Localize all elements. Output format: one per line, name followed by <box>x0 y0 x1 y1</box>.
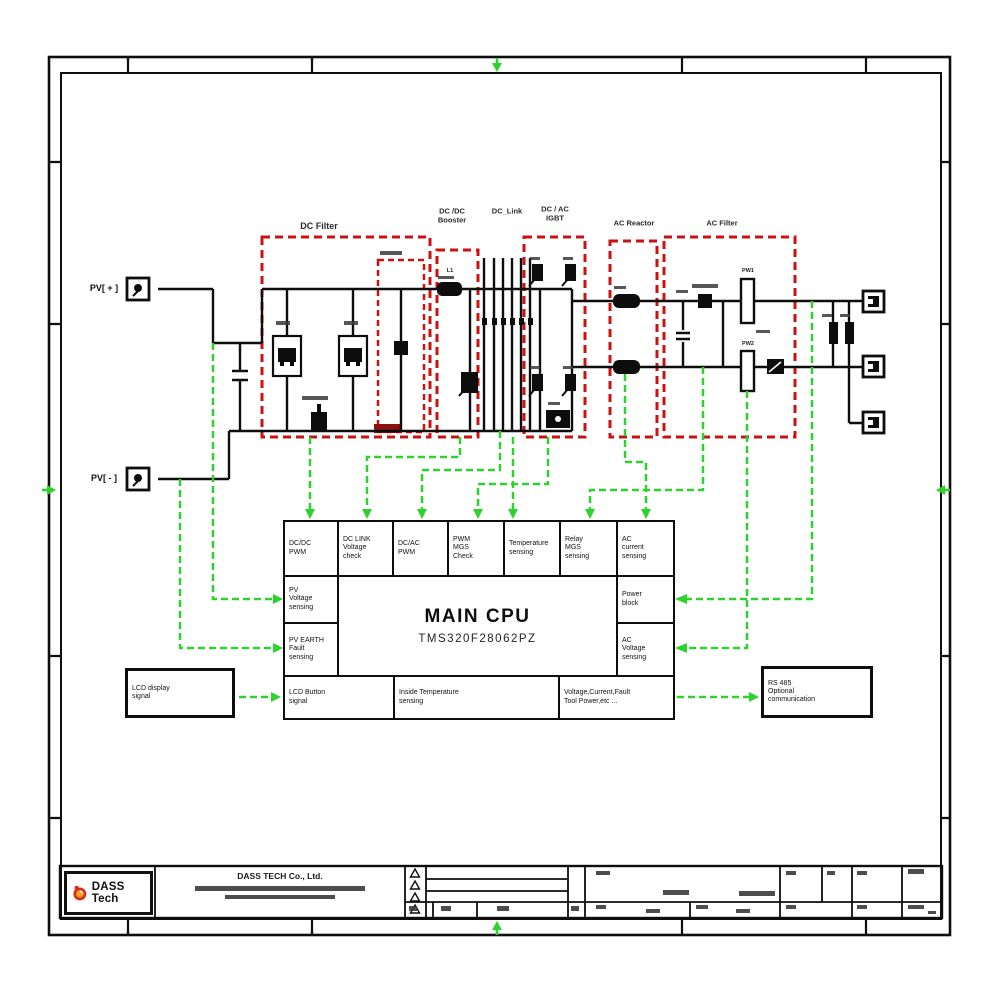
rs485-communication-box: RS 485 Optional communication <box>761 666 873 718</box>
cpu-box-ac-current-sensing: AC current sensing <box>616 520 675 577</box>
lcd-display-signal-box: LCD display signal <box>125 668 235 718</box>
section-label-ac-reactor: AC Reactor <box>614 220 655 229</box>
cpu-box-dcdc-pwm: DC/DC PWM <box>283 520 339 577</box>
cpu-box-voltage-current-fault: Voltage,Current,Fault Tool Power,etc ... <box>558 675 675 720</box>
cpu-box-ac-voltage-sensing: AC Voltage sensing <box>616 622 675 677</box>
relay-pw1 <box>741 279 754 323</box>
ac-reactor-box <box>610 241 657 437</box>
cpu-box-lcd-button-signal: LCD Button signal <box>283 675 395 720</box>
nf-component <box>698 294 712 308</box>
label-pw2: PW2 <box>742 341 754 347</box>
dass-tech-logo-text: DASS Tech <box>92 881 150 905</box>
frame-center-marks <box>42 58 950 935</box>
varistor-1 <box>829 322 838 344</box>
inductor-l1 <box>437 282 462 296</box>
ac-filter-box <box>664 237 795 437</box>
schematic-sheet: DC Filter DC /DC Booster DC_Link DC / AC… <box>0 0 1000 1000</box>
ac-output-terminals <box>863 291 884 433</box>
relay-pw2 <box>741 351 754 391</box>
reactor-coil-top <box>613 294 640 308</box>
section-label-ac-filter: AC Filter <box>706 220 737 229</box>
section-label-dcdc-booster: DC /DC Booster <box>438 207 466 224</box>
label-l1: L1 <box>447 268 453 274</box>
pv-terminals <box>127 278 149 490</box>
main-cpu-title: MAIN CPU <box>425 606 531 628</box>
main-cpu-box: MAIN CPU TMS320F28062PZ <box>337 575 618 677</box>
dass-tech-logo-cell: DASS Tech <box>64 871 153 915</box>
sensor-component <box>394 341 408 355</box>
main-cpu-chip: TMS320F28062PZ <box>418 633 536 647</box>
cpu-box-power-block: Power block <box>616 575 675 624</box>
sheet-frame <box>49 57 950 935</box>
company-name: DASS TECH Co., Ltd. <box>237 872 322 882</box>
circuit-components <box>127 264 884 490</box>
section-label-dc-filter: DC Filter <box>300 221 338 231</box>
cpu-box-pv-earth-fault-sensing: PV EARTH Fault sensing <box>283 622 339 677</box>
igbt-devices <box>532 264 576 391</box>
reactor-coil-bottom <box>613 360 640 374</box>
dass-tech-flame-icon <box>72 884 88 902</box>
cpu-box-pwm-mgs-check: PWM MGS Check <box>447 520 505 577</box>
filter-earth-component <box>311 412 327 431</box>
label-pw1: PW1 <box>742 268 754 274</box>
power-rails <box>158 258 864 479</box>
pv-minus-label: PV[ - ] <box>91 473 117 483</box>
cpu-box-temperature-sensing: Temperature sensing <box>503 520 561 577</box>
cpu-box-dcac-pwm: DC/AC PWM <box>392 520 449 577</box>
section-label-dc-link: DC_Link <box>492 208 522 217</box>
cpu-box-inside-temperature-sensing: Inside Temperature sensing <box>393 675 560 720</box>
schematic-canvas <box>0 0 1000 1000</box>
section-label-dcac-igbt: DC / AC IGBT <box>541 205 569 222</box>
cpu-box-relay-mgs-sensing: Relay MGS sensing <box>559 520 618 577</box>
pv-plus-label: PV[ + ] <box>90 283 118 293</box>
cpu-box-dclink-voltage-check: DC LINK Voltage check <box>337 520 394 577</box>
cpu-box-pv-voltage-sensing: PV Voltage sensing <box>283 575 339 624</box>
small-ref-marks <box>276 251 850 405</box>
varistor-2 <box>845 322 854 344</box>
